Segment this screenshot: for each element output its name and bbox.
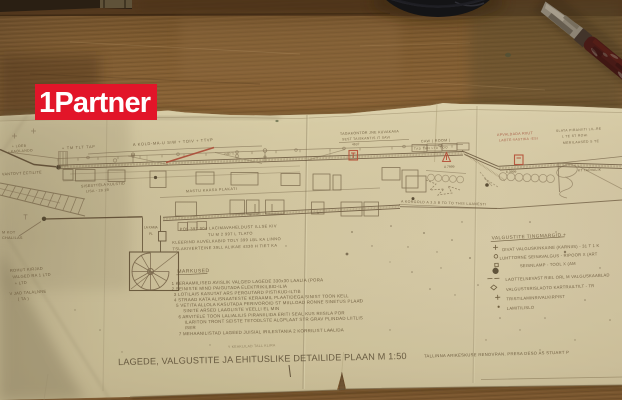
svg-text:LA KAMA: LA KAMA [144, 226, 159, 230]
svg-text:M KOT: M KOT [2, 231, 16, 235]
svg-text:6.3999: 6.3999 [506, 170, 517, 174]
svg-text:ISER: ISER [185, 325, 196, 330]
svg-text:A 7999: A 7999 [444, 165, 455, 169]
svg-text:1Partner: 1Partner [39, 87, 151, 119]
svg-text:+ LTD: + LTD [15, 280, 28, 286]
svg-text:CHALILAS: CHALILAS [2, 236, 23, 240]
svg-text:PL: PL [149, 232, 153, 236]
svg-text:4637: 4637 [352, 142, 360, 146]
svg-text:2x40 TL: 2x40 TL [224, 151, 235, 156]
svg-text:KT TARVALIK: KT TARVALIK [578, 168, 602, 173]
svg-text:+ LOEB: + LOEB [12, 144, 27, 149]
svg-text:( TA ): ( TA ) [18, 296, 30, 302]
